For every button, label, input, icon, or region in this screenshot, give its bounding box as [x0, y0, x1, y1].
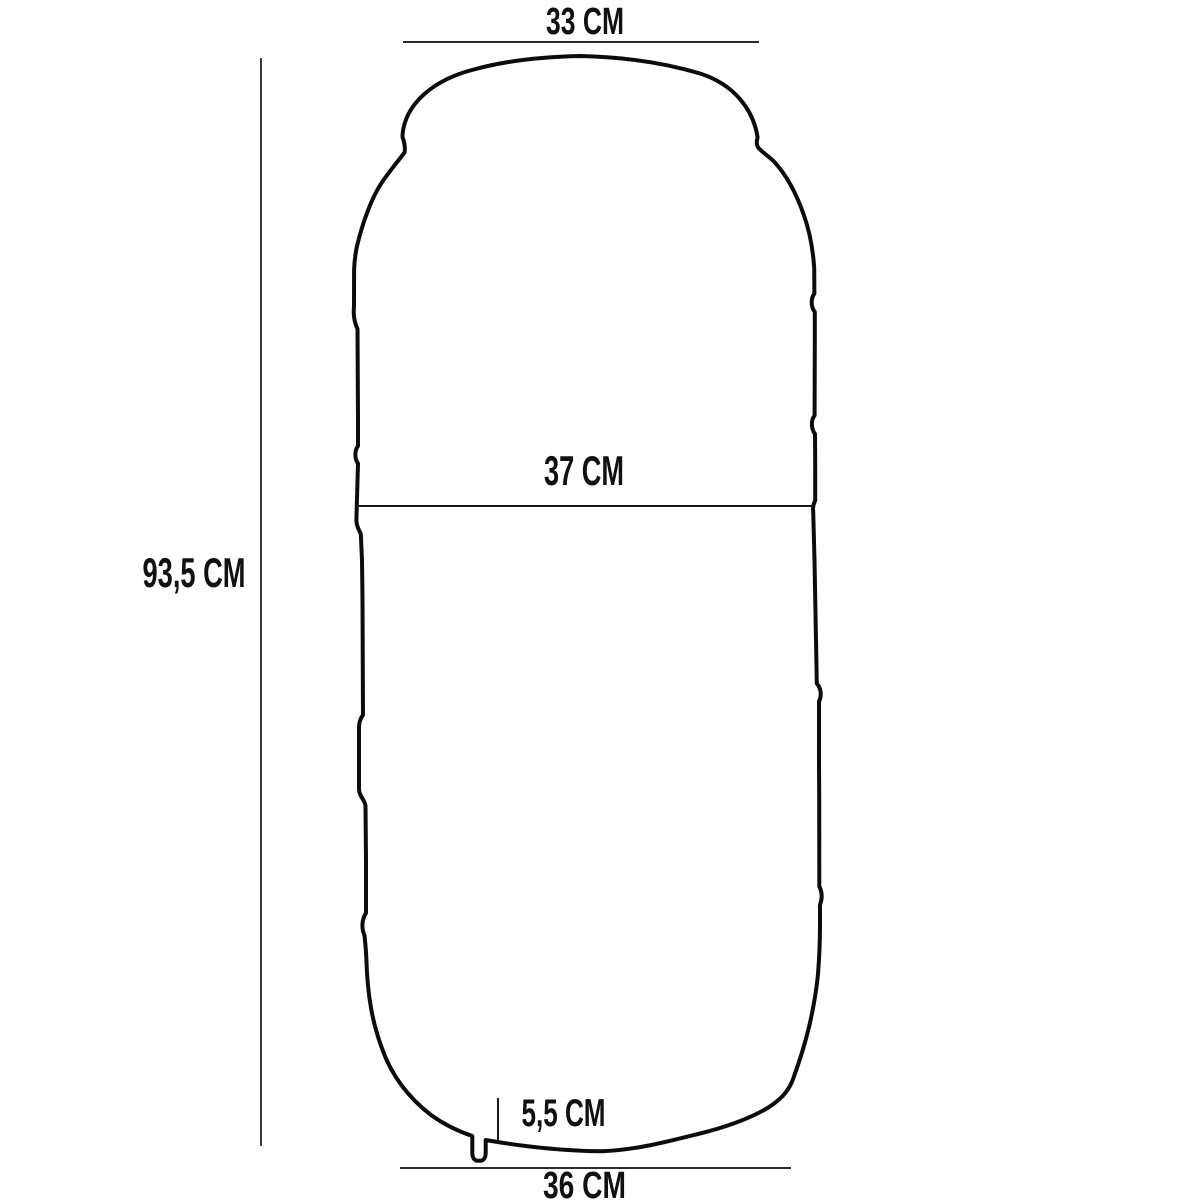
- svg-text:36 CM: 36 CM: [543, 1165, 626, 1200]
- svg-text:93,5 CM: 93,5 CM: [143, 549, 246, 596]
- svg-text:37 CM: 37 CM: [544, 447, 624, 494]
- svg-text:5,5 CM: 5,5 CM: [522, 1092, 606, 1135]
- svg-text:33 CM: 33 CM: [546, 1, 624, 43]
